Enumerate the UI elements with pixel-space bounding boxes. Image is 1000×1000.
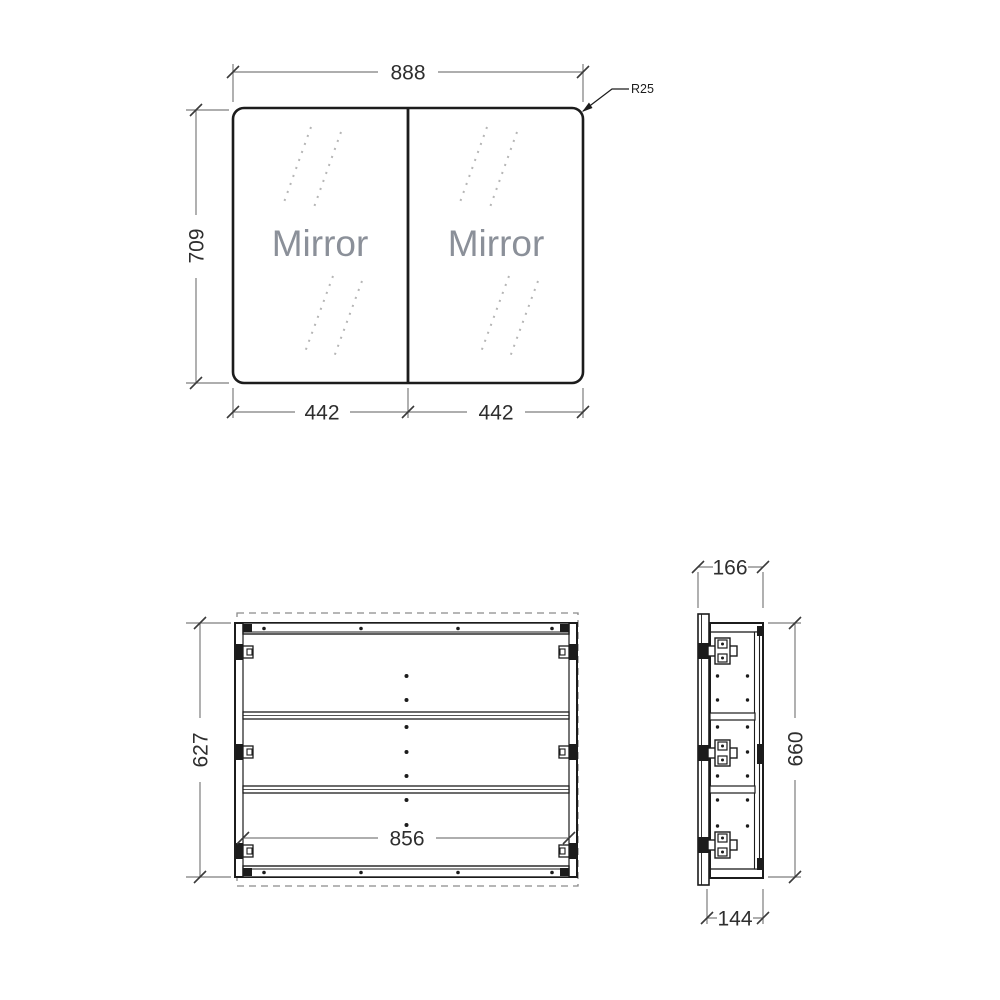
corner-radius-value: R25 — [631, 82, 654, 96]
front-elevation-view: Mirror Mirror 888 R25 709 442 — [185, 61, 654, 424]
corner-radius-callout: R25 — [582, 82, 654, 112]
mirror-label-left: Mirror — [272, 223, 369, 264]
carcass-inner-width-value: 856 — [389, 827, 424, 850]
side-shelf-upper — [710, 713, 755, 720]
front-width-dimension: 888 — [227, 61, 589, 102]
door-width-dimensions: 442 442 — [227, 388, 589, 424]
side-depth-total-value: 166 — [712, 556, 747, 579]
side-depth-body-dimension: 144 — [701, 889, 769, 930]
top-rail — [243, 623, 569, 634]
door-right-width-value: 442 — [478, 401, 513, 424]
side-depth-total-dimension: 166 — [692, 556, 769, 608]
mirror-cabinet-drawing: Mirror Mirror 888 R25 709 442 — [0, 0, 1000, 1000]
mirror-label-right: Mirror — [448, 223, 545, 264]
carcass-height-value: 627 — [189, 732, 212, 767]
shelf-upper — [243, 712, 569, 719]
front-height-value: 709 — [185, 228, 208, 263]
bottom-rail — [243, 866, 569, 877]
side-section-view: 166 660 144 — [692, 556, 807, 930]
technical-drawing-sheet: Mirror Mirror 888 R25 709 442 — [0, 0, 1000, 1000]
leader-arrow-icon — [582, 103, 593, 113]
front-height-dimension: 709 — [185, 104, 229, 389]
side-depth-body-value: 144 — [717, 907, 752, 930]
shelf-lower — [243, 786, 569, 793]
carcass-height-dimension: 627 — [186, 617, 231, 883]
side-height-value: 660 — [784, 731, 807, 766]
side-shelf-lower — [710, 786, 755, 793]
carcass-internal-view: 627 856 — [186, 613, 578, 886]
door-left-width-value: 442 — [304, 401, 339, 424]
front-width-value: 888 — [390, 61, 425, 84]
side-height-dimension: 660 — [768, 617, 807, 883]
